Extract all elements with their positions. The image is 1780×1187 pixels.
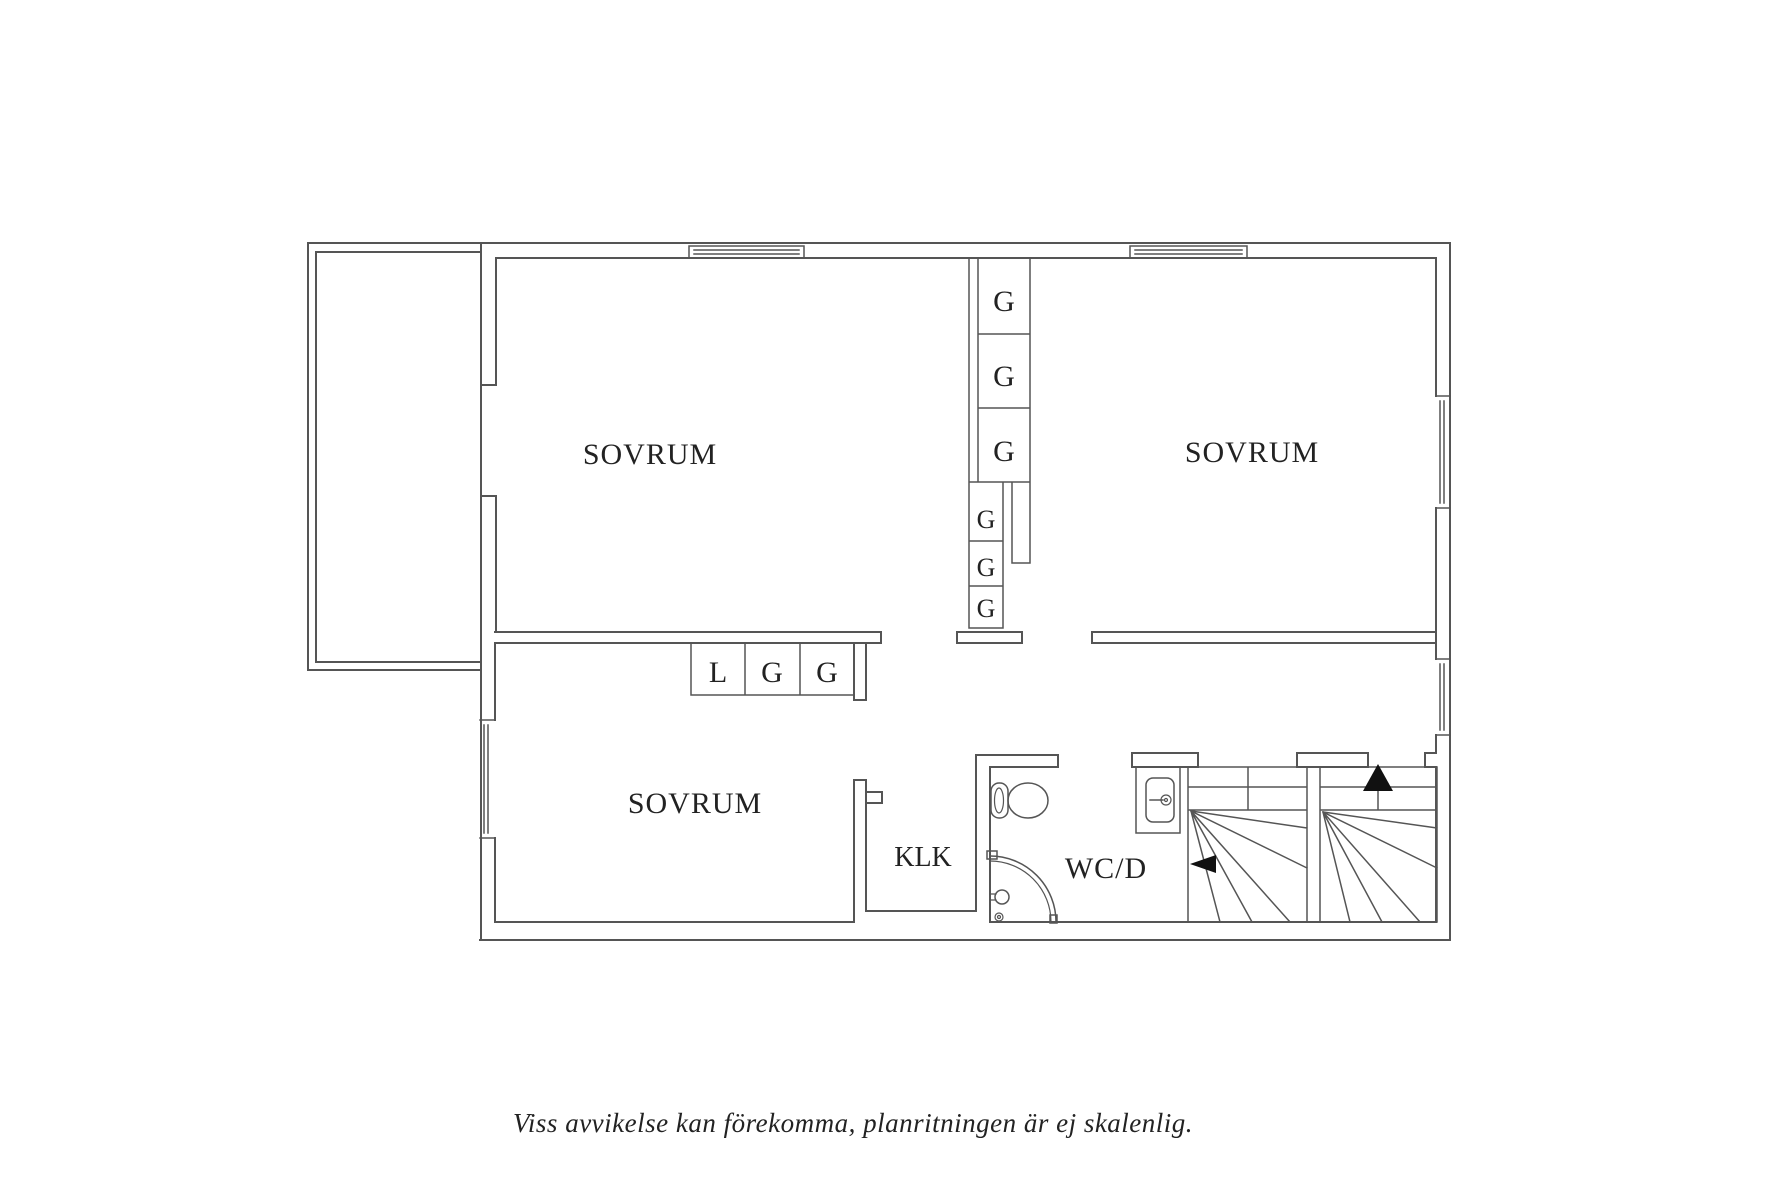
room-label-bedroom-top-right: SOVRUM — [1185, 436, 1319, 469]
stair-arrow-up-icon — [1363, 764, 1393, 791]
shower-door-outer-arc — [990, 856, 1056, 922]
outer-wall-lines — [308, 243, 1450, 940]
room-label-wcd: WC/D — [1065, 852, 1147, 885]
wardrobe-g-5: G — [977, 553, 996, 582]
wardrobe-l-label: L — [709, 656, 727, 689]
disclaimer-caption: Viss avvikelse kan förekomma, planritnin… — [513, 1108, 1193, 1138]
wardrobe-row: L G G — [691, 643, 854, 695]
floor-plan-page: G G G G G G L G G — [0, 0, 1780, 1187]
room-label-bedroom-top-left: SOVRUM — [583, 438, 717, 471]
faucet-knob-center — [1165, 799, 1168, 802]
divider-walls — [495, 632, 1436, 643]
klk-wall-lines — [854, 643, 882, 922]
shower-mixer — [995, 890, 1009, 904]
stairs-left-flight — [1188, 767, 1307, 922]
wardrobe-column: G G G G G G — [969, 258, 1030, 628]
window-top-right — [1130, 246, 1247, 258]
wardrobe-row-g-1: G — [761, 656, 783, 689]
stairs-left-lines — [1188, 767, 1307, 922]
divider-wall-lines — [495, 632, 1436, 643]
shower-icon — [987, 851, 1057, 923]
sink-icon — [1136, 767, 1180, 833]
window-east-upper — [1436, 396, 1450, 508]
room-label-bedroom-bottom-left: SOVRUM — [628, 787, 762, 820]
wardrobe-row-g-2: G — [816, 656, 838, 689]
shower-door-handle-top — [987, 851, 997, 859]
wardrobe-g-6: G — [977, 594, 996, 623]
floor-plan-drawing: G G G G G G L G G — [0, 0, 1780, 1187]
stairs-right-flight — [1320, 764, 1437, 922]
toilet-bowl — [1008, 783, 1048, 818]
window-west — [480, 720, 495, 838]
klk-walls — [854, 643, 882, 922]
toilet-icon — [991, 783, 1048, 818]
wc-wall-lines — [976, 753, 1368, 922]
shower-drain — [995, 913, 1003, 921]
window-east-lower — [1436, 659, 1450, 735]
windows — [480, 246, 1450, 838]
shower-drain-center — [998, 916, 1001, 919]
wardrobe-g-1: G — [993, 285, 1015, 318]
inner-wall-lines — [481, 258, 1436, 922]
wardrobe-g-4: G — [977, 505, 996, 534]
wc-walls — [976, 753, 1368, 922]
wardrobe-g-3: G — [993, 435, 1015, 468]
room-label-klk: KLK — [894, 842, 952, 873]
wardrobe-g-2: G — [993, 360, 1015, 393]
exterior-walls — [308, 243, 1450, 940]
toilet-tank-lid — [995, 788, 1004, 813]
window-top-left — [689, 246, 804, 258]
